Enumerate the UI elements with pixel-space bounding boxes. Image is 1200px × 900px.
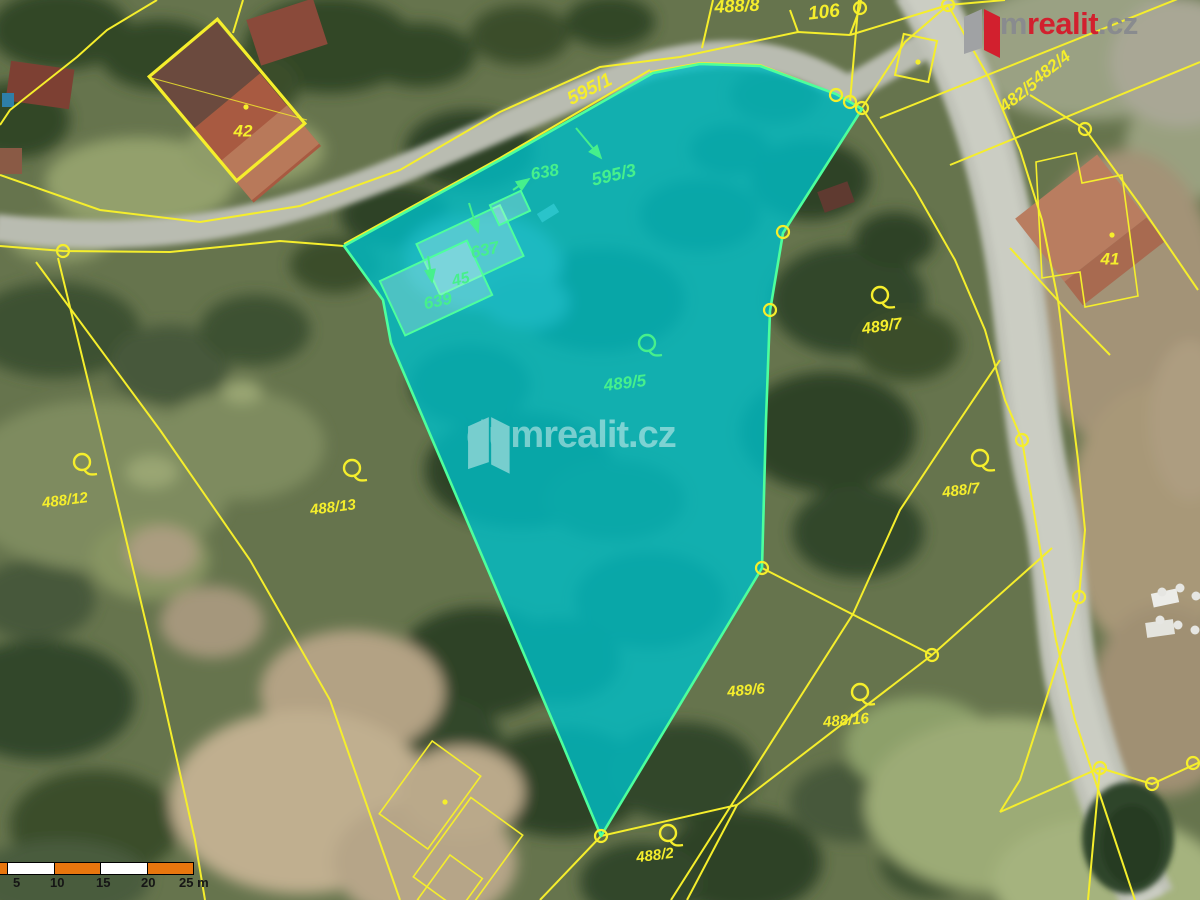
scale-label: 25 m (179, 875, 209, 890)
building-point-dot (442, 799, 447, 804)
parcel-label-488-8: 488/8 (713, 0, 760, 17)
scale-bar-segment (147, 863, 193, 874)
parcel-label-489-6: 489/6 (726, 680, 767, 700)
building-point-dot (243, 104, 248, 109)
dumrealit-logo: dumrealit.cz (963, 8, 1138, 39)
scale-label: 20 (141, 875, 155, 890)
cadastral-map-image: 488/8106482/4482/5595/1595/3638637456394… (0, 0, 1200, 900)
dumrealit-logo-icon (963, 8, 1003, 60)
map-scale-bar (0, 862, 194, 875)
scale-bar-segment (100, 863, 146, 874)
scale-bar-segment (54, 863, 100, 874)
scale-bar-segment (7, 863, 53, 874)
aerial-terrain-layer: 488/8106482/4482/5595/1595/3638637456394… (0, 0, 1200, 900)
parcel-label-41: 41 (1100, 249, 1120, 268)
logo-text-realit: realit (1027, 6, 1098, 41)
scale-label: 5 (13, 875, 20, 890)
parcel-label-106: 106 (807, 0, 841, 24)
building-point-dot (1109, 232, 1114, 237)
parcel-label-42: 42 (233, 121, 253, 140)
scale-label: 10 (50, 875, 64, 890)
scale-bar-segment (0, 863, 7, 874)
logo-text-cz: .cz (1098, 6, 1138, 41)
scale-label: 15 (96, 875, 110, 890)
building-point-dot (915, 59, 920, 64)
